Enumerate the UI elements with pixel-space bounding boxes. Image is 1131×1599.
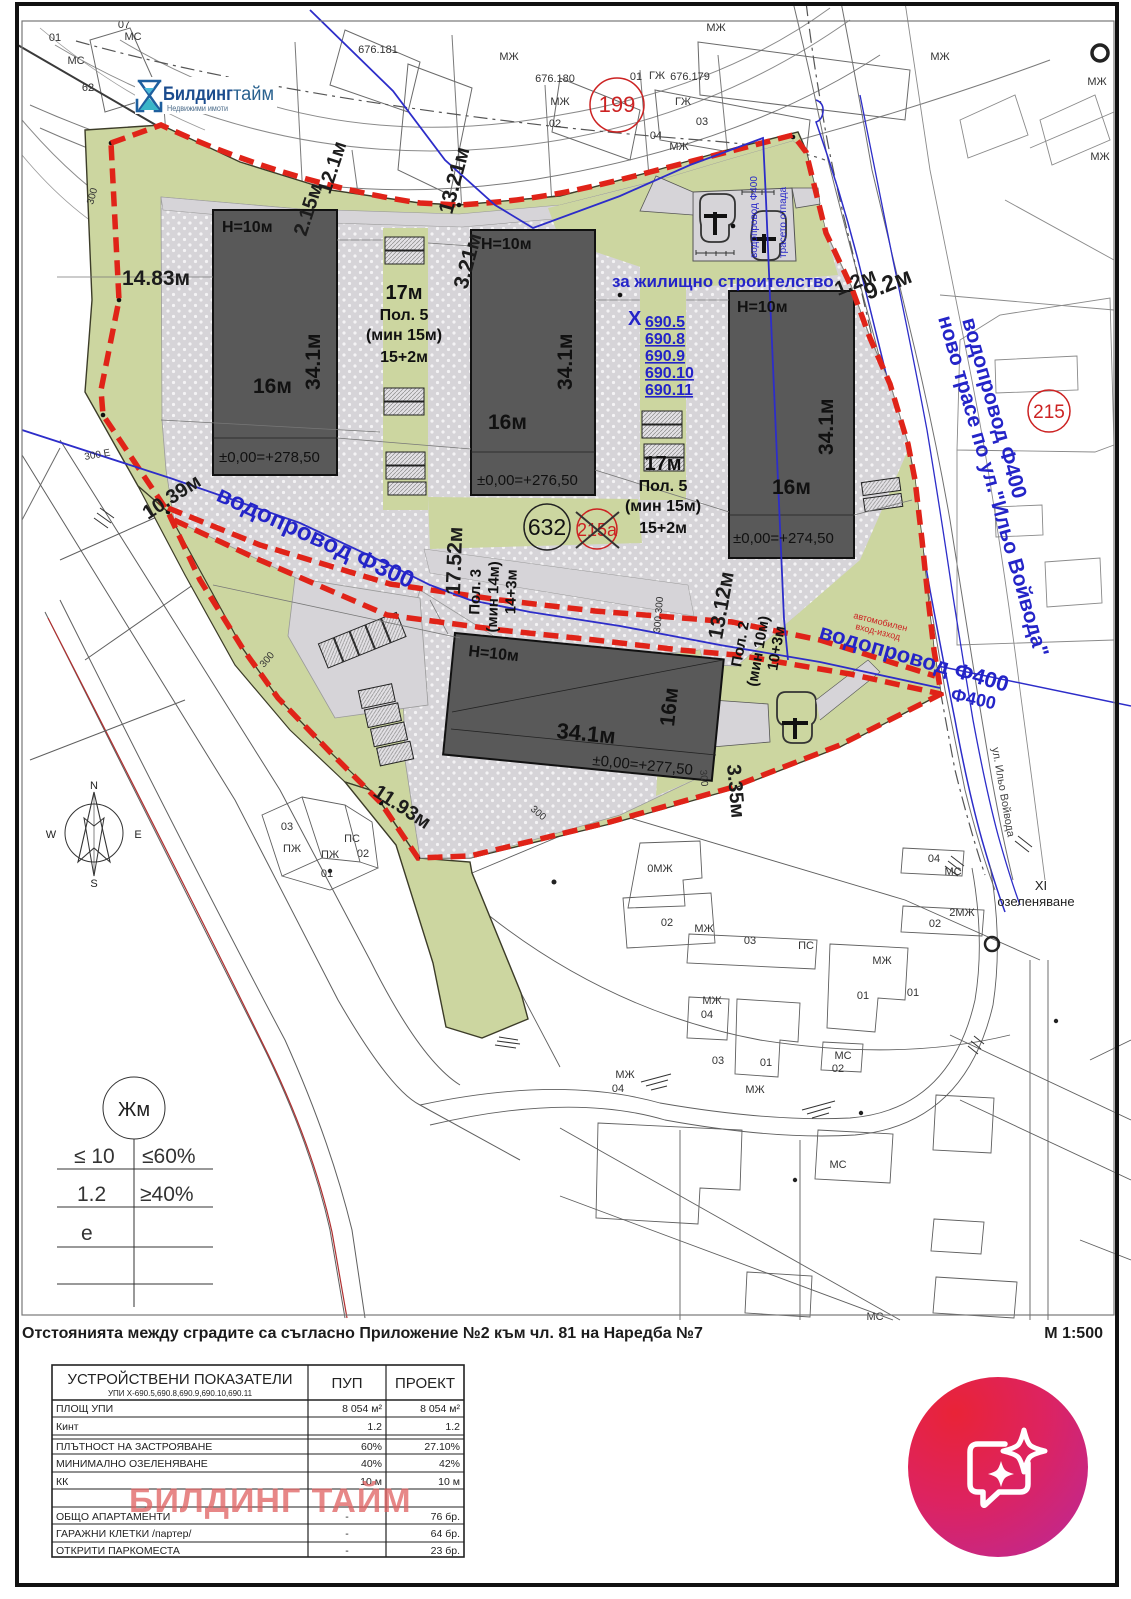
svg-text:±0,00=+278,50: ±0,00=+278,50 xyxy=(219,449,320,466)
svg-text:КК: КК xyxy=(56,1476,69,1488)
svg-text:04: 04 xyxy=(650,130,662,142)
svg-text:690.11: 690.11 xyxy=(645,382,693,399)
svg-text:16м: 16м xyxy=(656,686,683,727)
svg-text:за жилищно строителство: за жилищно строителство xyxy=(612,272,834,291)
svg-text:МЖ: МЖ xyxy=(706,22,725,34)
svg-text:МС: МС xyxy=(67,55,84,67)
svg-text:±0,00=+274,50: ±0,00=+274,50 xyxy=(733,530,834,547)
svg-text:тайм: тайм xyxy=(233,84,274,105)
svg-text:Жм: Жм xyxy=(118,1099,150,1121)
svg-text:03: 03 xyxy=(281,821,293,833)
svg-text:04: 04 xyxy=(701,1009,713,1021)
svg-text:676.181: 676.181 xyxy=(358,44,398,56)
svg-text:01: 01 xyxy=(49,32,61,44)
svg-text:МЖ: МЖ xyxy=(550,96,569,108)
svg-text:ГЖ: ГЖ xyxy=(675,96,691,108)
svg-text:14.83м: 14.83м xyxy=(122,267,190,290)
svg-text:632: 632 xyxy=(528,514,566,540)
svg-text:≤ 10: ≤ 10 xyxy=(74,1145,115,1168)
svg-text:17м: 17м xyxy=(644,453,681,475)
svg-text:МЖ: МЖ xyxy=(930,51,949,63)
svg-text:W: W xyxy=(46,829,57,841)
svg-text:04: 04 xyxy=(928,853,940,865)
svg-text:БИЛДИНГ ТАЙМ: БИЛДИНГ ТАЙМ xyxy=(129,1481,412,1520)
svg-text:МС: МС xyxy=(124,31,141,43)
svg-text:01: 01 xyxy=(760,1057,772,1069)
svg-text:690.8: 690.8 xyxy=(645,331,685,348)
svg-text:60%: 60% xyxy=(361,1441,382,1453)
svg-text:МЖ: МЖ xyxy=(615,1069,634,1081)
svg-text:42%: 42% xyxy=(439,1458,460,1470)
svg-text:01: 01 xyxy=(857,990,869,1002)
svg-text:03: 03 xyxy=(712,1055,724,1067)
svg-text:МС: МС xyxy=(829,1159,846,1171)
svg-text:±0,00=+276,50: ±0,00=+276,50 xyxy=(477,472,578,489)
svg-text:Н=10м: Н=10м xyxy=(222,219,273,236)
svg-text:16м: 16м xyxy=(488,411,527,434)
svg-text:34.1м: 34.1м xyxy=(302,334,325,390)
svg-text:ПЛОЩ УПИ: ПЛОЩ УПИ xyxy=(56,1403,113,1415)
svg-text:03: 03 xyxy=(744,935,756,947)
svg-text:Недвижими имоти: Недвижими имоти xyxy=(167,103,228,113)
svg-text:01: 01 xyxy=(907,987,919,999)
svg-text:676.179: 676.179 xyxy=(670,71,710,83)
svg-text:34.1м: 34.1м xyxy=(554,334,577,390)
svg-text:0МЖ: 0МЖ xyxy=(647,863,672,875)
svg-text:ОТКРИТИ ПАРКОМЕСТА: ОТКРИТИ ПАРКОМЕСТА xyxy=(56,1545,180,1557)
svg-text:ПС: ПС xyxy=(344,833,360,845)
svg-text:E: E xyxy=(134,829,141,841)
svg-text:МЖ: МЖ xyxy=(669,141,688,153)
svg-text:МС: МС xyxy=(866,1311,883,1323)
svg-text:S: S xyxy=(90,878,97,890)
svg-text:е: е xyxy=(81,1222,93,1245)
svg-text:Пол. 5: Пол. 5 xyxy=(639,478,688,495)
svg-text:МЖ: МЖ xyxy=(702,995,721,1007)
svg-text:1.2: 1.2 xyxy=(77,1183,106,1206)
svg-text:М 1:500: М 1:500 xyxy=(1044,1325,1103,1342)
svg-text:1.2: 1.2 xyxy=(367,1421,382,1433)
svg-text:76 бр.: 76 бр. xyxy=(431,1511,460,1523)
svg-text:03: 03 xyxy=(696,116,708,128)
svg-text:690.5: 690.5 xyxy=(645,314,685,331)
svg-text:X: X xyxy=(628,308,642,330)
svg-text:ГАРАЖНИ КЛЕТКИ /партер/: ГАРАЖНИ КЛЕТКИ /партер/ xyxy=(56,1528,191,1540)
svg-text:8 054 м²: 8 054 м² xyxy=(342,1403,382,1415)
svg-text:ПЖ: ПЖ xyxy=(283,843,301,855)
svg-text:8 054 м²: 8 054 м² xyxy=(420,1403,460,1415)
svg-text:17м: 17м xyxy=(385,282,422,304)
svg-text:озеленяване: озеленяване xyxy=(997,894,1074,909)
svg-text:690.9: 690.9 xyxy=(645,348,685,365)
svg-text:Билдинг: Билдинг xyxy=(163,84,233,105)
svg-text:Отстоянията между сградите са: Отстоянията между сградите са съгласно П… xyxy=(22,1325,703,1342)
svg-text:МЖ: МЖ xyxy=(745,1084,764,1096)
svg-text:МИНИМАЛНО ОЗЕЛЕНЯВАНЕ: МИНИМАЛНО ОЗЕЛЕНЯВАНЕ xyxy=(56,1458,208,1470)
svg-text:62: 62 xyxy=(82,82,94,94)
svg-text:-: - xyxy=(345,1545,349,1557)
svg-text:10 м: 10 м xyxy=(438,1476,460,1488)
svg-text:Пол. 3: Пол. 3 xyxy=(466,569,485,615)
svg-text:1.2: 1.2 xyxy=(445,1421,460,1433)
svg-text:трасето отпада: трасето отпада xyxy=(778,187,789,258)
svg-text:34.1м: 34.1м xyxy=(815,399,838,455)
svg-text:40%: 40% xyxy=(361,1458,382,1470)
svg-text:02: 02 xyxy=(832,1063,844,1075)
svg-text:02: 02 xyxy=(929,918,941,930)
svg-text:16м: 16м xyxy=(253,375,292,398)
svg-text:≤60%: ≤60% xyxy=(142,1145,196,1168)
svg-text:01: 01 xyxy=(321,868,333,880)
svg-text:3.35м: 3.35м xyxy=(722,764,749,819)
svg-text:МС: МС xyxy=(944,866,961,878)
svg-text:300: 300 xyxy=(697,769,709,787)
svg-text:(мин 14м): (мин 14м) xyxy=(484,561,503,633)
svg-text:МЖ: МЖ xyxy=(499,51,518,63)
svg-text:15+2м: 15+2м xyxy=(639,520,687,537)
svg-text:215: 215 xyxy=(1033,402,1065,423)
svg-text:16м: 16м xyxy=(772,476,811,499)
svg-text:17.52м: 17.52м xyxy=(442,526,467,595)
svg-text:676.180: 676.180 xyxy=(535,73,575,85)
svg-text:Кинт: Кинт xyxy=(56,1421,79,1433)
svg-text:МЖ: МЖ xyxy=(1087,76,1106,88)
svg-text:N: N xyxy=(90,780,98,792)
svg-text:04: 04 xyxy=(612,1083,624,1095)
svg-text:23 бр.: 23 бр. xyxy=(431,1545,460,1557)
svg-text:15+2м: 15+2м xyxy=(380,349,428,366)
svg-text:ПУП: ПУП xyxy=(331,1375,362,1392)
svg-text:690.10: 690.10 xyxy=(645,365,694,382)
svg-text:XI: XI xyxy=(1035,878,1047,893)
svg-text:Н=10м: Н=10м xyxy=(737,299,788,316)
svg-text:Пол. 5: Пол. 5 xyxy=(380,307,429,324)
svg-text:УСТРОЙСТВЕНИ ПОКАЗАТЕЛИ: УСТРОЙСТВЕНИ ПОКАЗАТЕЛИ xyxy=(67,1370,292,1388)
svg-text:МС: МС xyxy=(834,1050,851,1062)
svg-text:ПРОЕКТ: ПРОЕКТ xyxy=(395,1375,455,1392)
svg-text:МЖ: МЖ xyxy=(1090,151,1109,163)
svg-text:27.10%: 27.10% xyxy=(424,1441,460,1453)
svg-text:ГЖ: ГЖ xyxy=(649,70,665,82)
svg-text:02: 02 xyxy=(661,917,673,929)
svg-text:≥40%: ≥40% xyxy=(140,1183,194,1206)
svg-text:01: 01 xyxy=(630,71,642,83)
svg-text:-: - xyxy=(345,1528,349,1540)
svg-text:(мин 15м): (мин 15м) xyxy=(625,498,701,515)
svg-text:02: 02 xyxy=(549,118,561,130)
svg-text:УПИ X-690.5,690.8,690.9,690.10: УПИ X-690.5,690.8,690.9,690.10,690.11 xyxy=(108,1389,253,1398)
svg-text:(мин 15м): (мин 15м) xyxy=(366,327,442,344)
svg-text:ПС: ПС xyxy=(798,940,814,952)
svg-text:199: 199 xyxy=(599,92,636,117)
svg-text:МЖ: МЖ xyxy=(872,955,891,967)
svg-text:МЖ: МЖ xyxy=(694,923,713,935)
svg-text:ПЛЪТНОСТ НА ЗАСТРОЯВАНЕ: ПЛЪТНОСТ НА ЗАСТРОЯВАНЕ xyxy=(56,1441,212,1453)
svg-text:64 бр.: 64 бр. xyxy=(431,1528,460,1540)
svg-text:2МЖ: 2МЖ xyxy=(949,907,974,919)
svg-text:водопровод Ф400: водопровод Ф400 xyxy=(749,176,760,258)
svg-text:14+3м: 14+3м xyxy=(502,569,521,614)
svg-text:Н=10м: Н=10м xyxy=(481,236,532,253)
